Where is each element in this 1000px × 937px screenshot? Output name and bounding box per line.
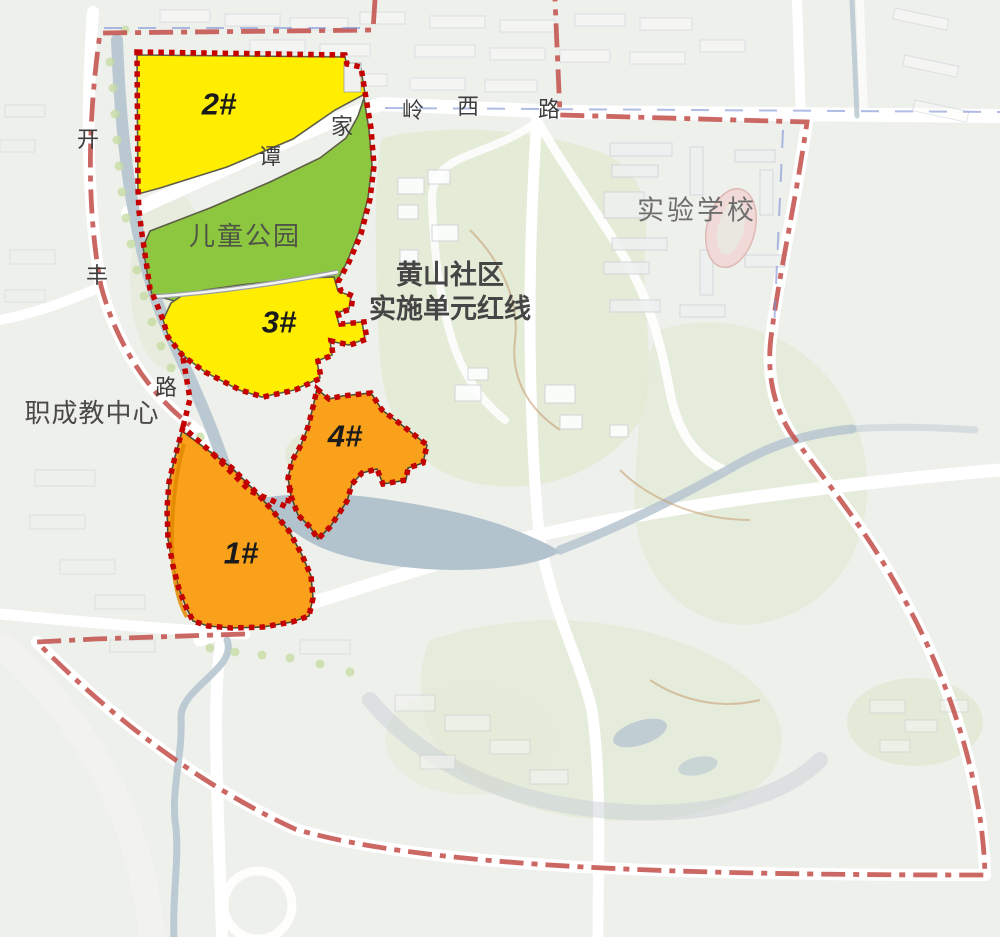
unit-redline-label-line1: 黄山社区 <box>369 258 531 292</box>
tanjialing-road-char-1: 谭 <box>259 146 281 168</box>
planning-map: 2# 3# 4# 1# 儿童公园 实验学校 职成教中心 黄山社区 实施单元红线 … <box>0 0 1000 937</box>
unit-redline-label-line2: 实施单元红线 <box>369 292 531 326</box>
parcel-4-label: 4# <box>328 421 362 452</box>
unit-redline-label: 黄山社区 实施单元红线 <box>369 258 531 326</box>
parcel-2-label: 2# <box>202 89 236 120</box>
kaifeng-road-char-3: 路 <box>155 377 177 399</box>
tanjialing-road-char-5: 路 <box>538 99 560 121</box>
parcel-1-label: 1# <box>224 538 258 569</box>
tanjialing-road-char-3: 岭 <box>402 100 424 122</box>
tanjialing-road-char-2: 家 <box>331 116 353 138</box>
kaifeng-road-char-1: 开 <box>77 129 99 151</box>
tanjialing-road-char-4: 西 <box>457 96 479 118</box>
site-plan-basemap <box>0 0 1000 937</box>
children-park-label: 儿童公园 <box>189 223 301 249</box>
experimental-school-label: 实验学校 <box>637 198 757 225</box>
kaifeng-road-char-2: 丰 <box>86 265 108 287</box>
vocational-center-label: 职成教中心 <box>24 400 159 426</box>
parcel-3-label: 3# <box>262 307 296 338</box>
